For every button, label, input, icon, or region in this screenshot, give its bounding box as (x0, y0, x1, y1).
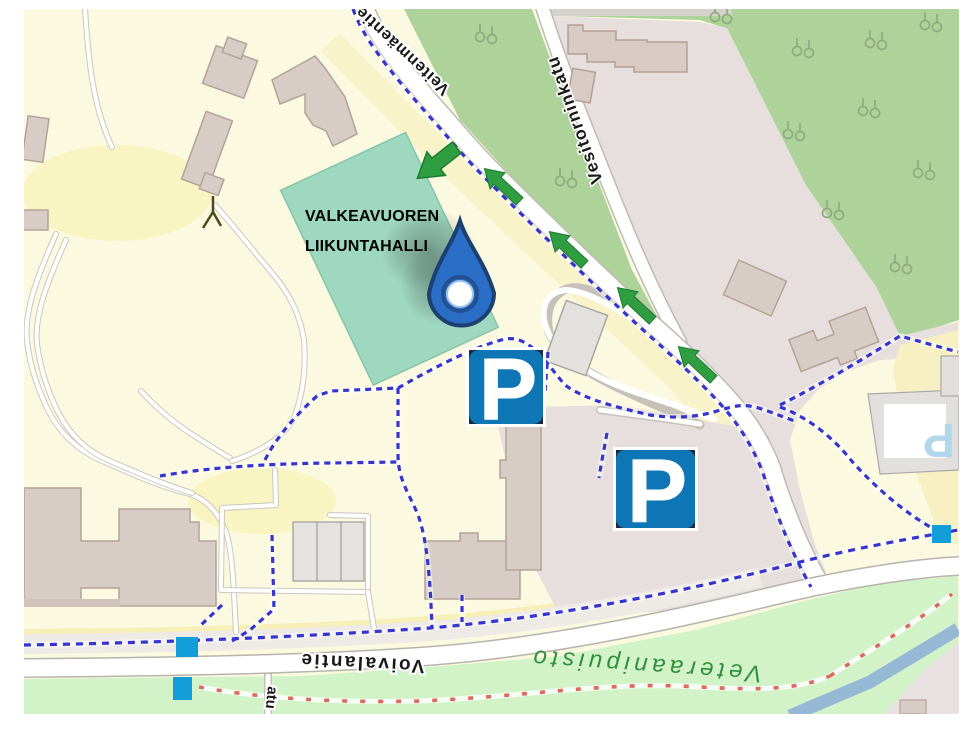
svg-text:P: P (479, 341, 537, 438)
svg-text:VALKEAVUOREN: VALKEAVUOREN (305, 208, 439, 225)
svg-text:LIIKUNTAHALLI: LIIKUNTAHALLI (305, 238, 428, 255)
svg-text:P: P (923, 413, 955, 466)
svg-text:atu: atu (262, 686, 281, 710)
svg-text:P: P (627, 442, 687, 542)
